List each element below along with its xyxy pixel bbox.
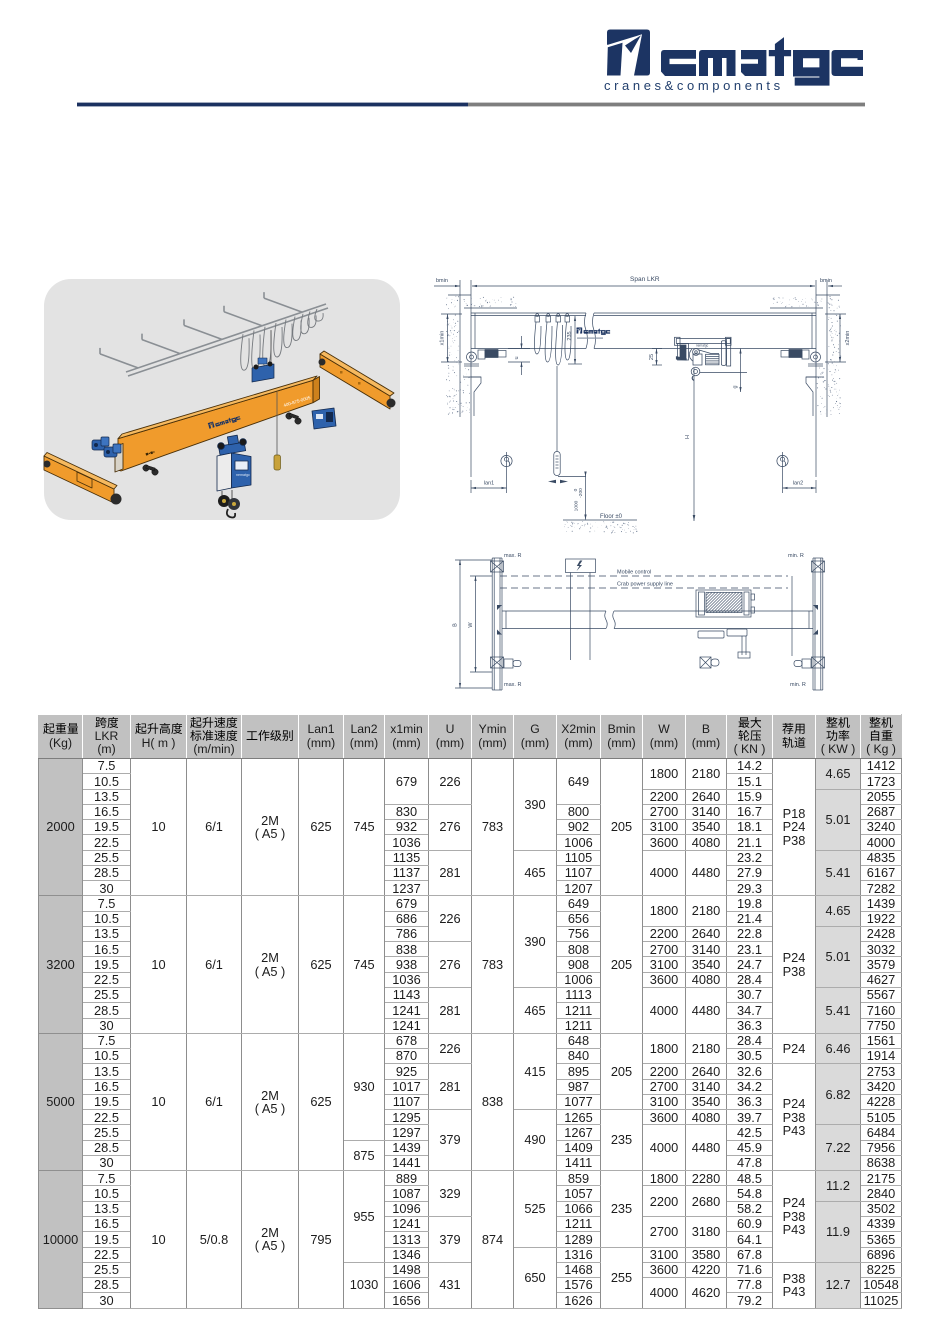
svg-text:cranes&components: cranes&components [604, 78, 784, 93]
svg-text:1000: 1000 [574, 500, 580, 511]
svg-text:lan1: lan1 [484, 481, 494, 487]
svg-text:min. R: min. R [790, 682, 806, 688]
svg-text:25: 25 [649, 354, 655, 360]
svg-text:max. R: max. R [504, 682, 521, 688]
svg-text:bmin: bmin [436, 278, 448, 284]
svg-text:nematgc: nematgc [236, 473, 250, 477]
svg-text:x1min: x1min [440, 331, 446, 346]
svg-text:u: u [514, 356, 520, 359]
svg-text:nematgc: nematgc [696, 344, 709, 348]
svg-text:g: g [733, 385, 739, 388]
svg-text:Crab power supply line: Crab power supply line [617, 582, 673, 588]
svg-text:Mobile control: Mobile control [617, 570, 651, 576]
svg-text:x2min: x2min [845, 331, 851, 346]
svg-text:max. R: max. R [504, 553, 521, 559]
svg-text:H: H [685, 435, 691, 439]
svg-text:W: W [468, 622, 474, 628]
svg-text:B: B [453, 623, 459, 627]
svg-text:Floor ±0: Floor ±0 [600, 514, 623, 520]
svg-text:Span LKR: Span LKR [630, 276, 660, 283]
svg-text:235: 235 [567, 331, 573, 340]
svg-text:bmin: bmin [820, 278, 832, 284]
svg-text:lan2: lan2 [793, 481, 803, 487]
svg-text:min. R: min. R [788, 553, 804, 559]
svg-text:-200: -200 [578, 488, 584, 498]
